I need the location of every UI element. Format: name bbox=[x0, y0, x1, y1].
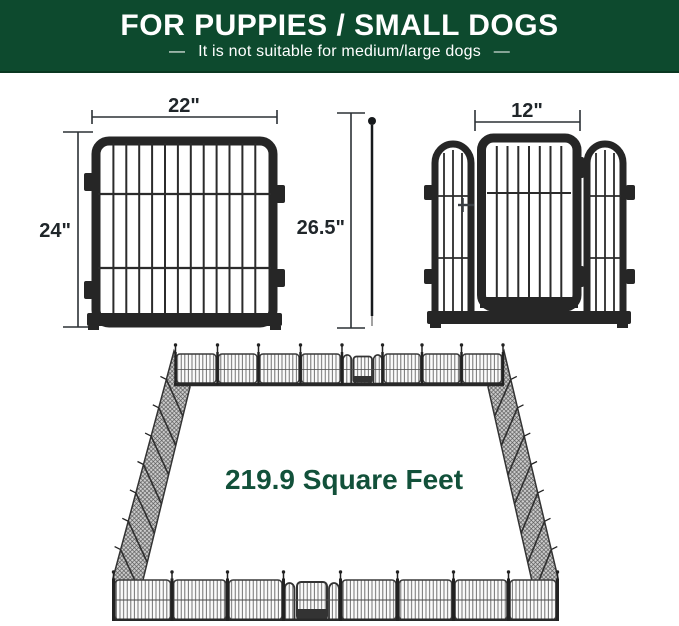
panel-height-label: 24" bbox=[39, 220, 71, 242]
ground-stake bbox=[368, 117, 376, 326]
product-diagram: 22" 24" bbox=[0, 73, 679, 621]
panel-width-label: 22" bbox=[168, 95, 200, 117]
door-left-side-panel bbox=[435, 144, 471, 311]
playpen-front-door bbox=[285, 582, 340, 620]
playpen-back-row bbox=[174, 343, 505, 385]
banner-subtitle: — It is not suitable for medium/large do… bbox=[169, 43, 510, 61]
playpen-illustration: 219.9 Square Feet bbox=[112, 343, 559, 621]
door-width-label: 12" bbox=[511, 100, 543, 122]
door-panel-diagram: 12" bbox=[424, 100, 635, 328]
banner-title: FOR PUPPIES / SMALL DOGS bbox=[120, 10, 558, 42]
door-gate bbox=[458, 138, 584, 308]
diagram-stage: 22" 24" bbox=[0, 73, 679, 621]
header-banner: FOR PUPPIES / SMALL DOGS — It is not sui… bbox=[0, 0, 679, 73]
door-section-base-bar bbox=[427, 311, 631, 324]
playpen-back-door bbox=[343, 355, 382, 383]
door-right-side-panel bbox=[587, 144, 623, 311]
area-label: 219.9 Square Feet bbox=[225, 464, 463, 495]
playpen-front-row bbox=[112, 570, 559, 621]
panel-diagram: 22" 24" bbox=[39, 95, 285, 330]
door-bottom-bar bbox=[480, 297, 578, 308]
panel-base-bar bbox=[87, 313, 282, 326]
overall-height-label: 26.5" bbox=[297, 217, 345, 239]
panel-front-view bbox=[84, 141, 285, 330]
